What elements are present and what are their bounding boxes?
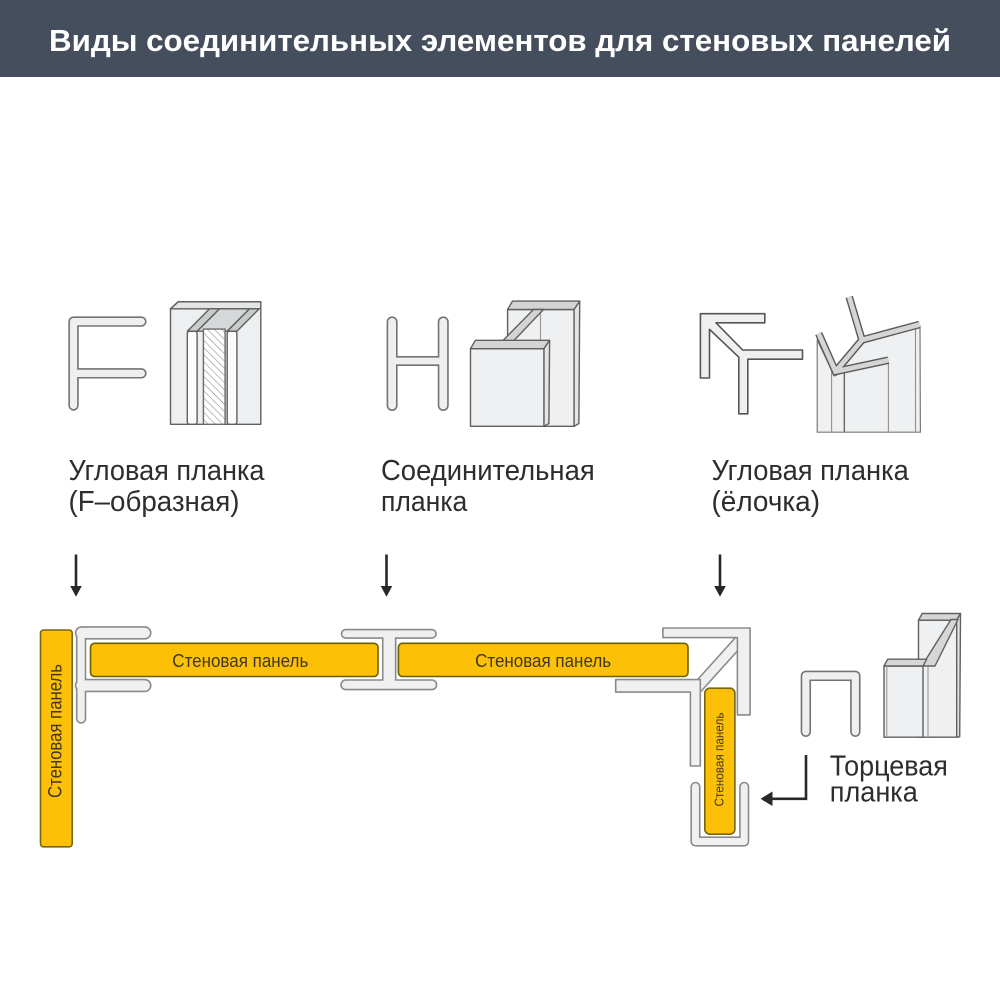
svg-text:Угловая планка: Угловая планка — [69, 455, 266, 487]
svg-text:планка: планка — [830, 777, 919, 809]
svg-text:Виды соединительных элементов: Виды соединительных элементов для стенов… — [49, 23, 951, 58]
svg-text:Угловая планка: Угловая планка — [712, 455, 910, 487]
svg-text:Соединительная: Соединительная — [381, 455, 595, 487]
svg-text:Стеновая панель: Стеновая панель — [475, 651, 611, 671]
svg-text:(ёлочка): (ёлочка) — [712, 486, 821, 518]
svg-text:Стеновая панель: Стеновая панель — [172, 651, 308, 671]
svg-text:планка: планка — [381, 486, 468, 518]
svg-text:(F–образная): (F–образная) — [69, 486, 240, 518]
svg-text:Стеновая панель: Стеновая панель — [46, 664, 67, 798]
svg-text:Стеновая панель: Стеновая панель — [713, 713, 727, 807]
